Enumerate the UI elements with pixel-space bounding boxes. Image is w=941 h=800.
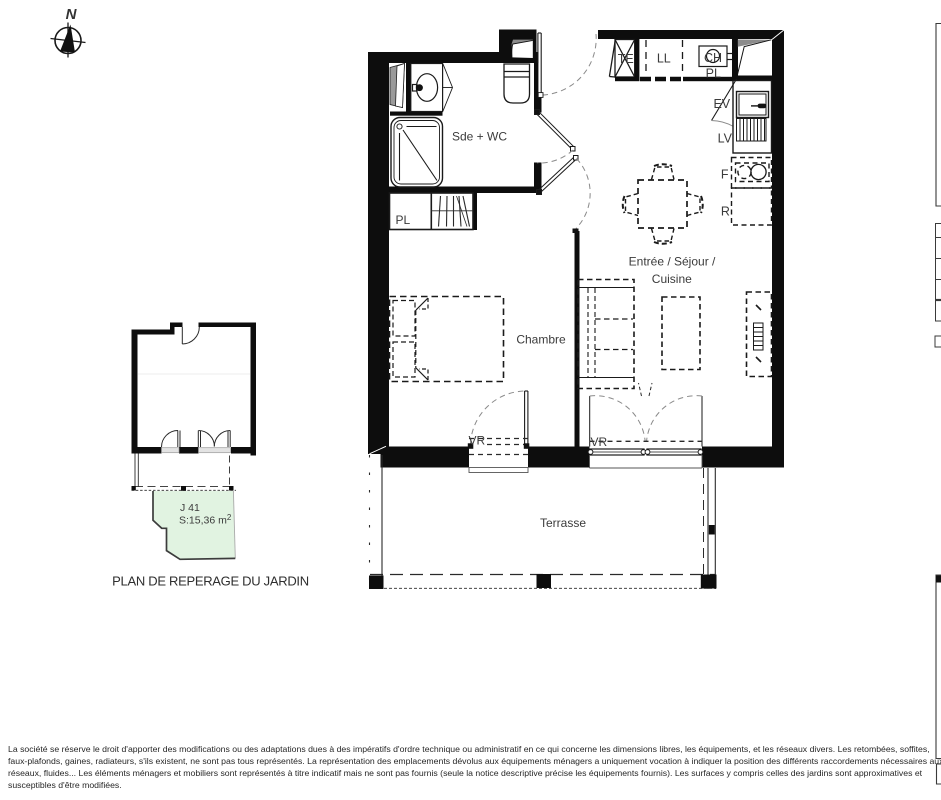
svg-text:VR: VR	[469, 434, 486, 448]
svg-text:PL: PL	[396, 213, 411, 227]
svg-text:N: N	[66, 6, 78, 23]
svg-text:Chambre: Chambre	[516, 333, 566, 347]
svg-text:LV: LV	[718, 132, 733, 146]
svg-text:S:15,36 m2: S:15,36 m2	[179, 513, 232, 527]
svg-text:F: F	[721, 168, 729, 182]
svg-text:Cuisine: Cuisine	[652, 272, 692, 286]
svg-text:Sde + WC: Sde + WC	[452, 130, 507, 144]
svg-text:EV: EV	[713, 97, 730, 111]
svg-text:VR: VR	[591, 435, 608, 449]
svg-text:J 41: J 41	[180, 502, 200, 514]
svg-text:Terrasse: Terrasse	[540, 516, 586, 530]
svg-text:PL: PL	[706, 67, 721, 81]
svg-text:TE: TE	[618, 52, 634, 66]
svg-text:R: R	[721, 205, 730, 219]
svg-text:PLAN DE REPERAGE DU JARDIN: PLAN DE REPERAGE DU JARDIN	[112, 574, 309, 589]
svg-text:CH: CH	[704, 51, 722, 65]
svg-text:Entrée / Séjour /: Entrée / Séjour /	[629, 255, 716, 269]
svg-text:LL: LL	[657, 52, 671, 66]
